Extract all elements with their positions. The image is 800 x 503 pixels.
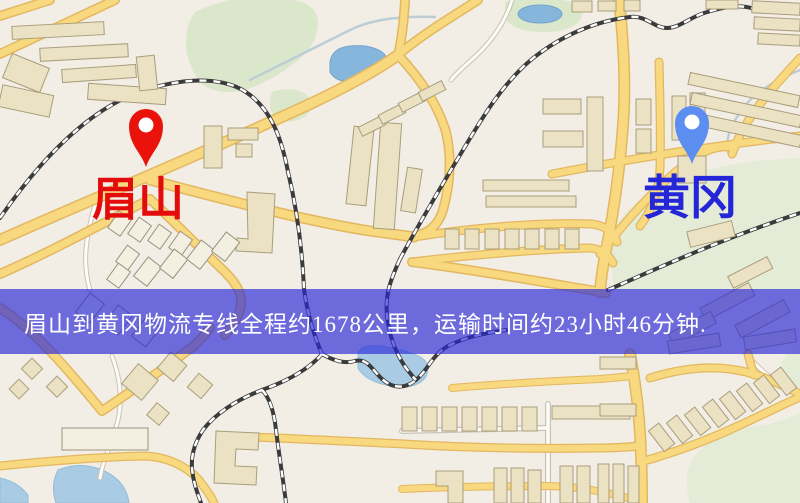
destination-label: 黄冈 [643,175,737,224]
map-canvas[interactable]: 眉山 黄冈 眉山到黄冈物流专线全程约1678公里，运输时间约23小时46分钟. [0,0,800,503]
destination-marker[interactable] [672,103,712,165]
location-pin-icon [126,106,166,168]
location-pin-icon [672,103,712,165]
route-info-banner: 眉山到黄冈物流专线全程约1678公里，运输时间约23小时46分钟. [0,289,800,354]
origin-label: 眉山 [92,176,184,224]
route-banner-text: 眉山到黄冈物流专线全程约1678公里，运输时间约23小时46分钟. [0,305,707,339]
map-background [0,0,800,503]
origin-marker[interactable] [126,106,166,168]
